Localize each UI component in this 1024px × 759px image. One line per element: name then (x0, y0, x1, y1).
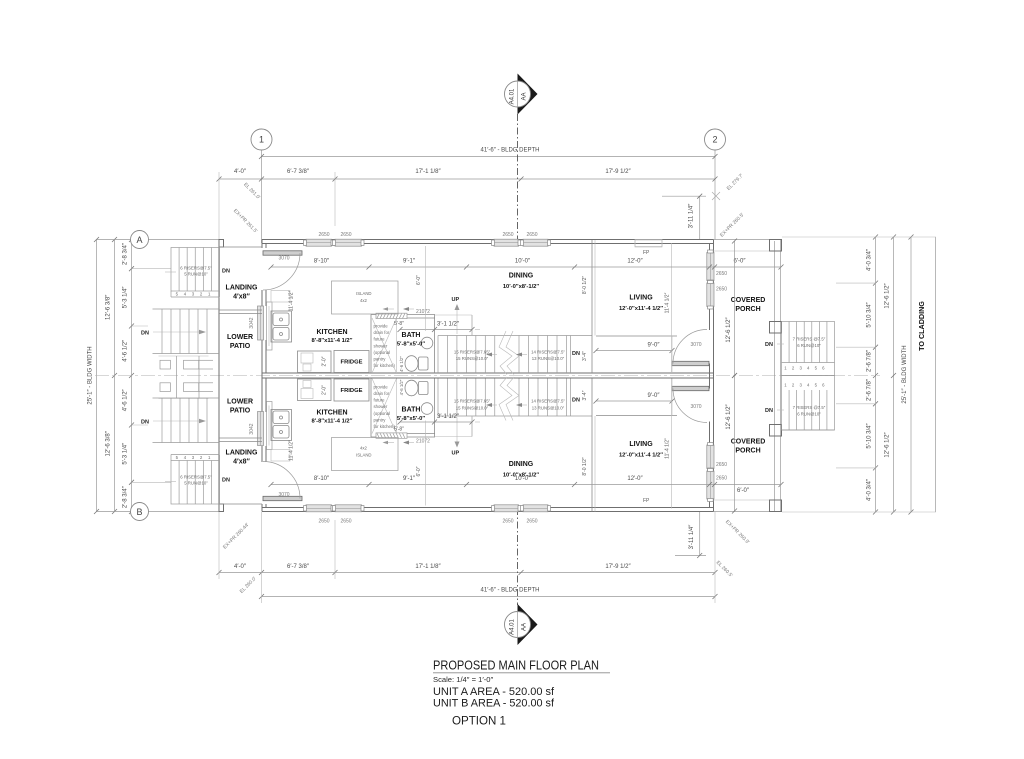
svg-text:25′-1″ - BLDG WIDTH: 25′-1″ - BLDG WIDTH (88, 346, 94, 404)
svg-text:15 RUNS@10.0″: 15 RUNS@10.0″ (456, 405, 489, 410)
svg-text:15 RUNS@10.0″: 15 RUNS@10.0″ (456, 356, 489, 361)
svg-text:shower: shower (374, 404, 388, 409)
svg-text:A: A (136, 235, 142, 245)
svg-text:4′-0″: 4′-0″ (234, 169, 247, 175)
svg-text:12′-6 3/8″: 12′-6 3/8″ (106, 430, 112, 456)
svg-text:(optional: (optional (374, 350, 391, 355)
svg-text:pantry: pantry (374, 417, 387, 422)
svg-text:8′-8″x11′-4 1/2″: 8′-8″x11′-4 1/2″ (312, 338, 353, 344)
svg-text:6′-0″: 6′-0″ (737, 488, 750, 494)
svg-text:17′-9 1/2″: 17′-9 1/2″ (605, 564, 631, 570)
svg-text:3′-4″: 3′-4″ (582, 390, 588, 400)
svg-text:OPTION 1: OPTION 1 (452, 714, 506, 728)
svg-text:10′-0″: 10′-0″ (515, 476, 531, 482)
svg-text:13 RUNS@10.0″: 13 RUNS@10.0″ (532, 356, 565, 361)
svg-text:PORCH: PORCH (735, 448, 760, 455)
svg-text:17′-1 1/8″: 17′-1 1/8″ (415, 169, 441, 175)
svg-text:provide: provide (374, 324, 389, 329)
svg-text:2650: 2650 (340, 519, 351, 525)
svg-text:21072: 21072 (416, 439, 430, 445)
svg-text:12′-6 1/2″: 12′-6 1/2″ (726, 403, 732, 429)
svg-text:PATIO: PATIO (230, 343, 251, 350)
svg-text:DN: DN (141, 420, 149, 426)
svg-text:2650: 2650 (716, 462, 727, 468)
svg-text:KITCHEN: KITCHEN (316, 329, 347, 336)
svg-text:4′x8″: 4′x8″ (233, 459, 250, 466)
svg-text:FRIDGE: FRIDGE (341, 360, 363, 366)
svg-text:6′-0″: 6′-0″ (734, 259, 747, 265)
svg-text:LOWER: LOWER (227, 334, 253, 341)
svg-text:pantry: pantry (374, 357, 387, 362)
svg-text:for kitchen): for kitchen) (374, 424, 396, 429)
svg-text:DN: DN (572, 398, 580, 404)
svg-text:3070: 3070 (690, 404, 701, 410)
svg-text:drain for: drain for (374, 330, 390, 335)
svg-text:6′-7 3/8″: 6′-7 3/8″ (287, 564, 310, 570)
svg-text:14 RISERS@7.5″: 14 RISERS@7.5″ (531, 349, 565, 354)
svg-text:6 RISERS@7.5″: 6 RISERS@7.5″ (180, 475, 212, 480)
svg-text:7 RISERS @7.5″: 7 RISERS @7.5″ (793, 337, 826, 342)
svg-text:LIVING: LIVING (629, 295, 653, 302)
svg-text:10′-0″: 10′-0″ (515, 259, 531, 265)
svg-text:future: future (374, 398, 386, 403)
svg-text:5′-8″: 5′-8″ (394, 427, 404, 433)
svg-text:COVERED: COVERED (731, 439, 766, 446)
svg-text:3042: 3042 (249, 317, 255, 328)
svg-text:8′-10″: 8′-10″ (314, 259, 330, 265)
svg-text:5′-10 3/4″: 5′-10 3/4″ (867, 301, 873, 327)
svg-text:12′-0″: 12′-0″ (627, 259, 643, 265)
svg-text:FP: FP (643, 250, 650, 256)
svg-text:UNIT A AREA - 520.00 sf: UNIT A AREA - 520.00 sf (433, 686, 555, 698)
svg-text:21072: 21072 (416, 309, 430, 315)
svg-text:6′-0″: 6′-0″ (416, 466, 422, 476)
svg-text:11′-4 1/2″: 11′-4 1/2″ (289, 290, 295, 311)
svg-text:2650: 2650 (526, 232, 537, 238)
svg-text:2650: 2650 (318, 519, 329, 525)
svg-text:drain for: drain for (374, 391, 390, 396)
svg-text:5 RUN@10″: 5 RUN@10″ (184, 481, 208, 486)
svg-text:13 RUNS@10.0″: 13 RUNS@10.0″ (532, 405, 565, 410)
svg-text:41′-6″ - BLDG DEPTH: 41′-6″ - BLDG DEPTH (481, 148, 540, 154)
svg-text:12′-6 1/2″: 12′-6 1/2″ (885, 282, 891, 308)
svg-text:2′-8 3/4″: 2′-8 3/4″ (123, 485, 129, 508)
svg-text:9′-0″: 9′-0″ (648, 393, 661, 399)
svg-text:25′-1″ - BLDG WIDTH: 25′-1″ - BLDG WIDTH (902, 345, 908, 403)
svg-text:2′-6 7/8″: 2′-6 7/8″ (867, 378, 873, 401)
svg-text:3′-11 1/4″: 3′-11 1/4″ (689, 203, 695, 229)
svg-text:9′-0″: 9′-0″ (648, 343, 661, 349)
svg-text:DN: DN (765, 342, 773, 348)
svg-text:12′-0″x11′-4 1/2″: 12′-0″x11′-4 1/2″ (619, 306, 663, 312)
svg-text:8′-0 1/2″: 8′-0 1/2″ (582, 457, 588, 476)
svg-text:DN: DN (572, 351, 580, 357)
svg-text:AA: AA (522, 92, 528, 100)
svg-text:DINING: DINING (509, 461, 534, 468)
svg-text:2: 2 (712, 135, 717, 145)
svg-text:LOWER: LOWER (227, 399, 253, 406)
svg-text:ISLAND: ISLAND (356, 453, 372, 458)
svg-text:2650: 2650 (716, 287, 727, 293)
svg-text:11′-4 1/2″: 11′-4 1/2″ (665, 438, 671, 459)
svg-text:Scale: 1/4″ = 1′-0″: Scale: 1/4″ = 1′-0″ (433, 675, 494, 684)
svg-text:1: 1 (259, 135, 264, 145)
svg-text:12′-6 1/2″: 12′-6 1/2″ (885, 431, 891, 457)
svg-text:4x2: 4x2 (360, 446, 368, 451)
svg-text:FRIDGE: FRIDGE (341, 388, 363, 394)
svg-text:5′-3 1/4″: 5′-3 1/4″ (123, 442, 129, 465)
svg-text:2650: 2650 (318, 232, 329, 238)
svg-text:17′-9 1/2″: 17′-9 1/2″ (605, 169, 631, 175)
svg-text:6 RUN@10″: 6 RUN@10″ (797, 412, 821, 417)
svg-text:A4.01: A4.01 (510, 88, 516, 104)
svg-text:4′-6 1/2″: 4′-6 1/2″ (399, 356, 404, 372)
svg-text:3070: 3070 (278, 492, 289, 498)
svg-text:TO CLADDING: TO CLADDING (917, 301, 926, 351)
svg-text:B: B (136, 507, 142, 517)
svg-text:(optional: (optional (374, 411, 391, 416)
svg-text:12′-6 1/2″: 12′-6 1/2″ (726, 316, 732, 342)
svg-text:UNIT B AREA - 520.00 sf: UNIT B AREA - 520.00 sf (433, 698, 555, 710)
svg-text:3070: 3070 (278, 256, 289, 262)
svg-text:4′-0 3/4″: 4′-0 3/4″ (867, 478, 873, 501)
svg-text:DN: DN (222, 478, 230, 484)
svg-text:2′-0″: 2′-0″ (322, 385, 328, 395)
svg-text:8′-8″x11′-4 1/2″: 8′-8″x11′-4 1/2″ (312, 419, 353, 425)
svg-text:8′-0 1/2″: 8′-0 1/2″ (582, 276, 588, 295)
svg-text:KITCHEN: KITCHEN (316, 410, 347, 417)
svg-text:4′-6 1/2″: 4′-6 1/2″ (123, 339, 129, 362)
svg-text:2650: 2650 (340, 232, 351, 238)
svg-text:14 RISERS@7.5″: 14 RISERS@7.5″ (531, 399, 565, 404)
svg-text:4′x8″: 4′x8″ (233, 294, 250, 301)
svg-text:3′-1 1/2″: 3′-1 1/2″ (437, 414, 460, 420)
svg-text:7 RISERS @7.5″: 7 RISERS @7.5″ (793, 405, 826, 410)
svg-text:15 RISERS@7.65″: 15 RISERS@7.65″ (454, 399, 491, 404)
svg-text:9′-1″: 9′-1″ (403, 476, 416, 482)
svg-text:DN: DN (222, 269, 230, 275)
svg-text:2650: 2650 (526, 519, 537, 525)
svg-text:2650: 2650 (716, 271, 727, 277)
svg-text:LIVING: LIVING (629, 441, 653, 448)
svg-text:4′-6 1/2″: 4′-6 1/2″ (123, 388, 129, 411)
svg-text:8′-10″: 8′-10″ (314, 476, 330, 482)
svg-text:DN: DN (141, 331, 149, 337)
svg-text:6′-7 3/8″: 6′-7 3/8″ (287, 169, 310, 175)
svg-text:5′-10 3/4″: 5′-10 3/4″ (867, 422, 873, 448)
svg-text:12′-0″: 12′-0″ (627, 476, 643, 482)
svg-text:LANDING: LANDING (226, 450, 258, 457)
svg-text:3′-11 1/4″: 3′-11 1/4″ (689, 524, 695, 550)
svg-text:10′-0″x8′-1/2″: 10′-0″x8′-1/2″ (503, 284, 540, 290)
svg-text:2′-6 7/8″: 2′-6 7/8″ (867, 349, 873, 372)
svg-text:11′-4 1/2″: 11′-4 1/2″ (665, 292, 671, 313)
svg-text:3042: 3042 (249, 423, 255, 434)
svg-text:12′-0″x11′-4 1/2″: 12′-0″x11′-4 1/2″ (619, 453, 663, 459)
svg-text:3070: 3070 (690, 342, 701, 348)
svg-text:UP: UP (452, 297, 460, 303)
svg-text:2′-8 3/4″: 2′-8 3/4″ (123, 242, 129, 265)
svg-text:shower: shower (374, 343, 388, 348)
svg-text:6′-0″: 6′-0″ (416, 275, 422, 285)
svg-text:17′-1 1/8″: 17′-1 1/8″ (415, 564, 441, 570)
svg-text:4x2: 4x2 (360, 298, 368, 303)
svg-text:BATH: BATH (402, 332, 421, 339)
svg-text:PORCH: PORCH (735, 306, 760, 313)
svg-text:LANDING: LANDING (226, 285, 258, 292)
svg-text:2′-0″: 2′-0″ (322, 356, 328, 366)
svg-text:5′-8″: 5′-8″ (394, 321, 404, 327)
svg-text:DINING: DINING (509, 273, 534, 280)
svg-text:5′-8″x5′-0″: 5′-8″x5′-0″ (397, 341, 426, 347)
svg-text:5′-3 1/4″: 5′-3 1/4″ (123, 286, 129, 309)
svg-text:FP: FP (643, 498, 650, 504)
svg-text:DN: DN (765, 408, 773, 414)
svg-text:COVERED: COVERED (731, 297, 766, 304)
svg-text:3′-1 1/2″: 3′-1 1/2″ (437, 322, 460, 328)
svg-text:2650: 2650 (502, 519, 513, 525)
svg-text:A4.01: A4.01 (510, 619, 516, 635)
svg-text:4′-6 1/2″: 4′-6 1/2″ (399, 379, 404, 395)
svg-text:PROPOSED MAIN FLOOR PLAN: PROPOSED MAIN FLOOR PLAN (433, 658, 599, 673)
svg-text:4′-0″: 4′-0″ (234, 564, 247, 570)
svg-text:9′-1″: 9′-1″ (403, 259, 416, 265)
svg-text:41′-6″ - BLDG DEPTH: 41′-6″ - BLDG DEPTH (481, 588, 540, 594)
svg-text:3′-4″: 3′-4″ (582, 351, 588, 361)
svg-text:future: future (374, 337, 386, 342)
svg-text:provide: provide (374, 384, 389, 389)
svg-text:ISLAND: ISLAND (356, 291, 372, 296)
svg-text:for kitchen): for kitchen) (374, 363, 396, 368)
svg-text:2650: 2650 (716, 476, 727, 482)
svg-text:5 RUN@10″: 5 RUN@10″ (184, 272, 208, 277)
svg-text:PATIO: PATIO (230, 408, 251, 415)
svg-text:2650: 2650 (502, 232, 513, 238)
svg-text:UP: UP (452, 451, 460, 457)
svg-text:AA: AA (522, 623, 528, 631)
svg-text:6 RUN@10″: 6 RUN@10″ (797, 343, 821, 348)
svg-text:4′-0 3/4″: 4′-0 3/4″ (867, 248, 873, 271)
svg-text:BATH: BATH (402, 407, 421, 414)
svg-text:12′-6 3/8″: 12′-6 3/8″ (106, 294, 112, 320)
svg-text:11′-4 1/2″: 11′-4 1/2″ (289, 440, 295, 461)
svg-text:6 RISERS@7.5″: 6 RISERS@7.5″ (180, 266, 212, 271)
svg-text:15 RISERS@7.65″: 15 RISERS@7.65″ (454, 349, 491, 354)
